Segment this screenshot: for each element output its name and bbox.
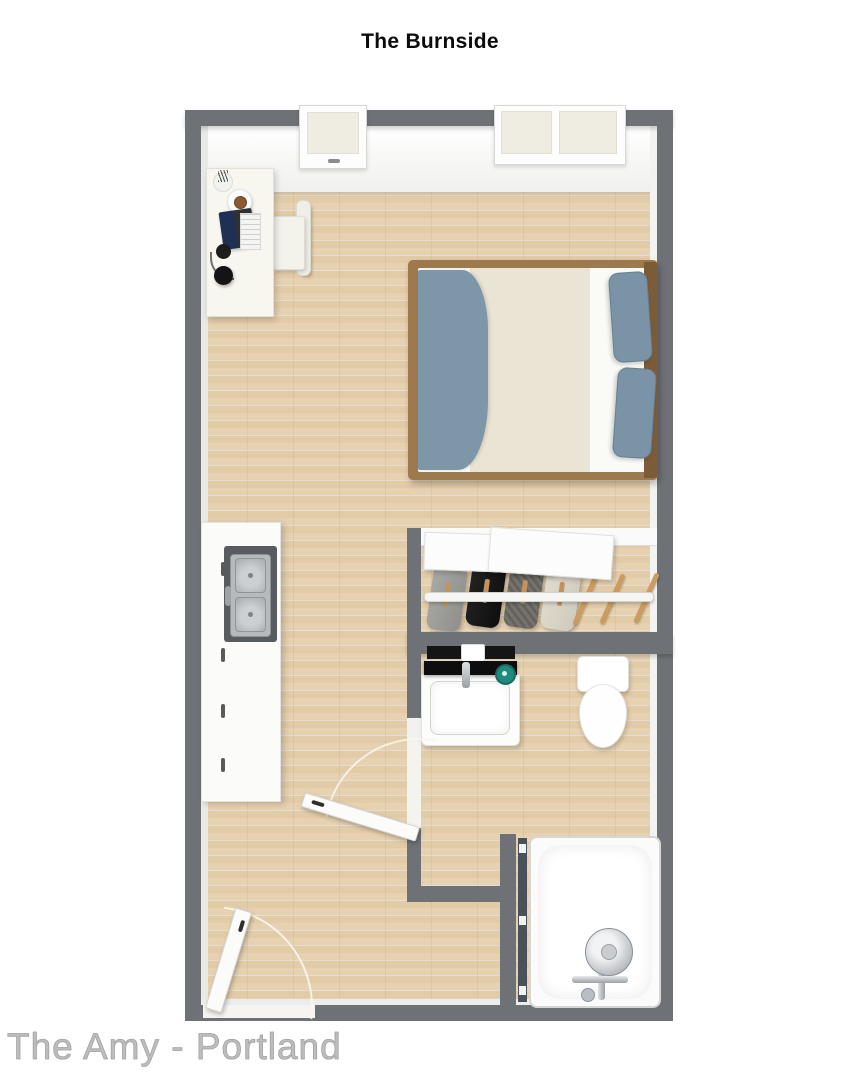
- bathroom-wall: [407, 654, 421, 718]
- pillow: [608, 271, 653, 364]
- closet-wall: [407, 528, 421, 632]
- hinge-icon: [519, 844, 526, 853]
- cabinet-handle-icon: [221, 758, 225, 772]
- window-latch-icon: [328, 159, 340, 163]
- kitchen-sink: [230, 554, 271, 637]
- bed-blue-blanket: [418, 270, 488, 470]
- plant-icon: [213, 172, 233, 192]
- door-handle-icon: [311, 800, 325, 808]
- kitchen-faucet-icon: [225, 586, 231, 606]
- towel-icon: [461, 644, 485, 662]
- vanity-faucet-icon: [462, 662, 470, 688]
- vanity-basin: [430, 681, 510, 735]
- sink-basin: [235, 558, 266, 593]
- shower-glass-door: [518, 838, 527, 1002]
- drain-icon: [248, 612, 253, 617]
- cabinet-handle-icon: [221, 562, 225, 576]
- sliding-closet-door: [488, 527, 615, 581]
- closet-rod: [424, 592, 654, 602]
- window-sash-left: [501, 111, 552, 154]
- window-sash-right: [559, 111, 617, 154]
- notepad-icon: [240, 213, 261, 250]
- drain-icon: [248, 573, 253, 578]
- soap-dispenser-icon: [495, 664, 516, 685]
- wall-left: [185, 110, 201, 1021]
- desk-chair: [273, 216, 305, 270]
- window-shade: [307, 112, 359, 154]
- sink-basin: [235, 597, 266, 632]
- double-window: [494, 105, 626, 165]
- hinge-icon: [519, 916, 526, 925]
- cabinet-handle-icon: [221, 648, 225, 662]
- shower-head-icon: [585, 928, 633, 976]
- floorplan-page: The Burnside: [0, 0, 860, 1080]
- desk-lamp-icon: [214, 266, 233, 285]
- shower-fixture-icon: [572, 976, 628, 983]
- single-window: [299, 105, 367, 169]
- desk-lamp-base: [216, 244, 231, 259]
- page-title: The Burnside: [0, 30, 860, 54]
- shower-knob-icon: [581, 988, 595, 1002]
- pillow: [612, 367, 657, 460]
- hinge-icon: [519, 986, 526, 995]
- bed-duvet: [470, 268, 590, 472]
- watermark: The Amy - Portland: [7, 1026, 342, 1068]
- cabinet-handle-icon: [221, 704, 225, 718]
- door-handle-icon: [238, 920, 245, 933]
